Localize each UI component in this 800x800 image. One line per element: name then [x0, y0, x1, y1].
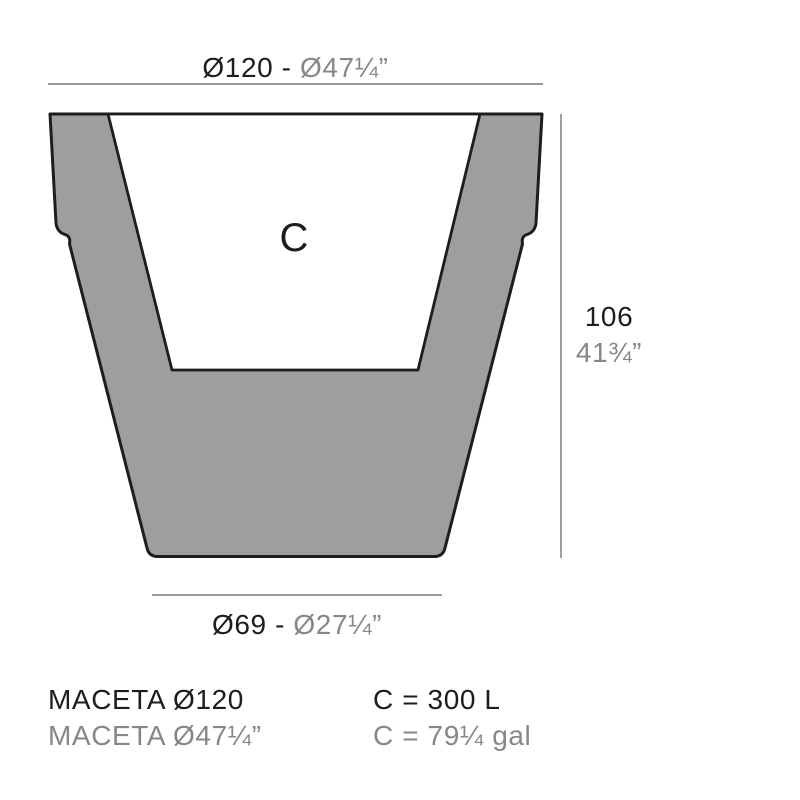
top-dimension-separator: -	[273, 52, 300, 83]
capacity-imperial: C = 79¼ gal	[373, 718, 531, 754]
bottom-dimension-imperial: Ø27¼”	[293, 609, 382, 640]
bottom-dimension-label: Ø69 - Ø27¼”	[152, 607, 442, 643]
capacity-metric: C = 300 L	[373, 682, 531, 718]
height-dimension-imperial: 41¾”	[561, 335, 657, 371]
pot-cross-section-drawing	[0, 0, 800, 800]
footer-capacity-column: C = 300 L C = 79¼ gal	[373, 682, 531, 754]
model-name-metric: MACETA Ø120	[48, 682, 262, 718]
bottom-dimension-separator: -	[267, 609, 294, 640]
bottom-dimension-metric: Ø69	[212, 609, 267, 640]
top-dimension-metric: Ø120	[202, 52, 273, 83]
height-dimension-label: 106 41¾”	[561, 299, 657, 371]
top-dimension-label: Ø120 - Ø47¼”	[48, 50, 543, 86]
capacity-letter: C	[274, 218, 314, 258]
spec-sheet: Ø120 - Ø47¼” C 106 41¾” Ø69 - Ø27¼” MACE…	[0, 0, 800, 800]
top-dimension-imperial: Ø47¼”	[300, 52, 389, 83]
height-dimension-metric: 106	[561, 299, 657, 335]
model-name-imperial: MACETA Ø47¼”	[48, 718, 262, 754]
footer-model-column: MACETA Ø120 MACETA Ø47¼”	[48, 682, 262, 754]
